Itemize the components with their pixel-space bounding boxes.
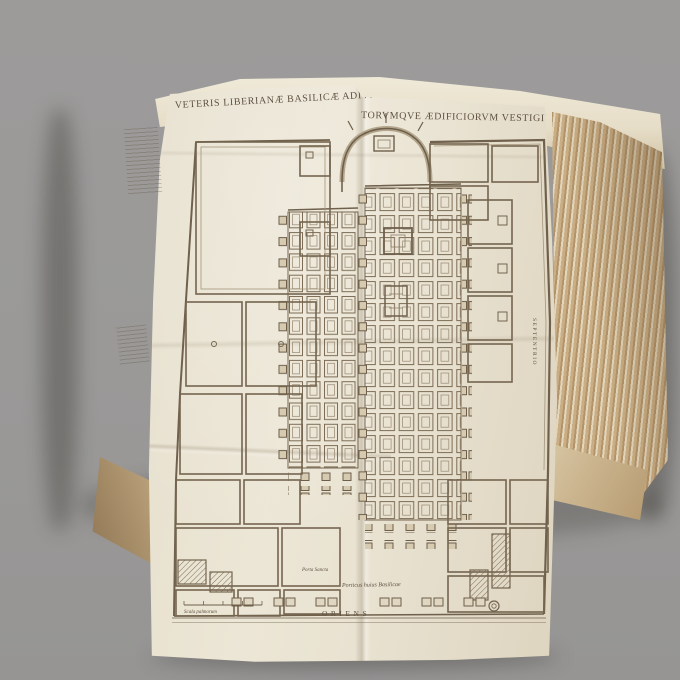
pier-row-left — [277, 212, 287, 468]
nave-grid-left — [288, 212, 358, 468]
chapel — [468, 344, 512, 382]
porticus-caption: Porticus huius Basilicae — [341, 582, 401, 589]
chapel — [468, 248, 512, 292]
nave — [277, 188, 472, 549]
scale-bar-label: Scala palmorum — [184, 610, 217, 615]
underlying-page-text — [116, 325, 150, 366]
foldout-plate: VETERIS LIBERIANÆ BASILICÆ ADIVNC TORVMQ… — [143, 78, 563, 670]
pier-row-transverse — [288, 486, 358, 495]
staircase — [178, 560, 206, 584]
plate-title-left: VETERIS LIBERIANÆ BASILICÆ ADIVNC — [175, 89, 385, 111]
porta-sancta-label: Porta Sancta — [301, 568, 329, 573]
pier-row-transverse — [365, 524, 461, 533]
pier-row-right — [462, 188, 472, 520]
nave-grid-right — [365, 188, 461, 520]
staircase — [210, 572, 232, 592]
underlying-page-text — [124, 127, 163, 195]
staircase — [492, 534, 510, 588]
staircase — [470, 570, 488, 600]
chapel — [468, 296, 512, 340]
oriens-label: ORIENS — [322, 609, 370, 618]
plate-title-right: TORVMQVE ÆDIFICIORVM VESTIGIVM — [361, 110, 560, 125]
pier-row-center — [358, 188, 367, 520]
apse-altar — [374, 136, 394, 151]
septentrio-label: SEPTENTRIO — [531, 318, 537, 366]
basilica-floor-plan: VETERIS LIBERIANÆ BASILICÆ ADIVNC TORVMQ… — [148, 82, 560, 667]
chapel — [468, 200, 512, 244]
well — [489, 601, 499, 611]
pier-row-transverse — [365, 540, 461, 549]
photo-of-open-antique-book: VETERIS LIBERIANÆ BASILICÆ ADIVNC TORVMQ… — [0, 0, 680, 680]
